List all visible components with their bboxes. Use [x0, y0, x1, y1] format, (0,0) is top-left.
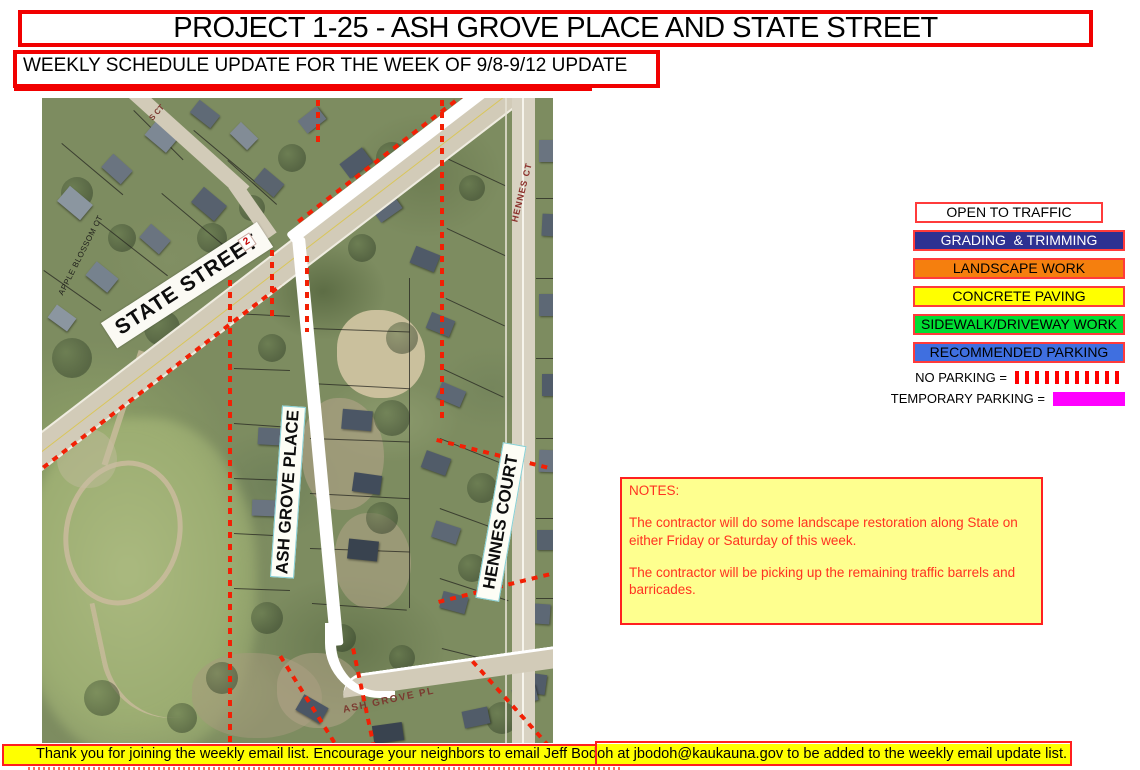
- legend-item-5: RECOMMENDED PARKING: [913, 342, 1125, 363]
- map-tree: [84, 680, 120, 716]
- legend: OPEN TO TRAFFICGRADING & TRIMMINGLANDSCA…: [913, 202, 1125, 370]
- map-house: [542, 374, 553, 396]
- map-tree: [278, 144, 306, 172]
- map-red-dash-line: [440, 100, 444, 422]
- no-parking-legend-row: NO PARKING =: [883, 370, 1125, 385]
- flyer-page: PROJECT 1-25 - ASH GROVE PLACE AND STATE…: [0, 0, 1140, 770]
- map-house: [372, 722, 404, 743]
- map-tree: [348, 234, 376, 262]
- map-red-dash-line: [270, 250, 274, 322]
- map-tree: [52, 338, 92, 378]
- map-house: [341, 409, 373, 432]
- map-house: [431, 520, 461, 544]
- temporary-parking-swatch: [1053, 392, 1125, 406]
- legend-item-2: LANDSCAPE WORK: [913, 258, 1125, 279]
- map-house: [191, 187, 227, 222]
- map-house: [85, 261, 118, 293]
- map-house: [298, 106, 327, 133]
- map-lot-line: [536, 358, 553, 359]
- map-lot-line: [536, 598, 553, 599]
- temporary-parking-legend-row: TEMPORARY PARKING =: [883, 391, 1125, 406]
- no-parking-label: NO PARKING =: [915, 370, 1007, 385]
- map-house: [252, 500, 277, 517]
- page-title: PROJECT 1-25 - ASH GROVE PLACE AND STATE…: [18, 10, 1093, 47]
- map-lot-line: [536, 518, 553, 519]
- aerial-map: STATE STREET ASH GROVE PLACE HENNES COUR…: [42, 98, 553, 743]
- map-tree: [459, 175, 485, 201]
- map-tree: [258, 334, 286, 362]
- map-lot-line: [409, 278, 410, 608]
- notes-heading: NOTES:: [629, 482, 1034, 499]
- map-lot-line: [234, 368, 290, 371]
- map-red-dash-line: [228, 268, 232, 743]
- legend-item-0: OPEN TO TRAFFIC: [915, 202, 1103, 223]
- map-tree: [366, 502, 398, 534]
- map-house: [421, 450, 452, 476]
- map-house: [462, 706, 491, 728]
- map-house: [533, 603, 550, 624]
- map-house: [539, 294, 553, 316]
- page-subtitle: WEEKLY SCHEDULE UPDATE FOR THE WEEK OF 9…: [13, 50, 660, 88]
- map-tree: [374, 400, 410, 436]
- legend-item-3: CONCRETE PAVING: [913, 286, 1125, 307]
- side-street-road: [128, 98, 250, 198]
- map-house: [352, 472, 382, 495]
- map-lot-line: [447, 228, 506, 256]
- temporary-parking-label: TEMPORARY PARKING =: [891, 391, 1045, 406]
- map-house: [48, 304, 77, 331]
- sidewalk-line: [505, 98, 507, 743]
- map-house: [539, 140, 553, 162]
- footer-banner: Thank you for joining the weekly email l…: [2, 744, 1071, 766]
- notes-paragraph: The contractor will do some landscape re…: [629, 514, 1034, 549]
- notes-box: NOTES: The contractor will do some lands…: [620, 477, 1043, 625]
- map-red-dash-line: [305, 256, 309, 332]
- map-lot-line: [536, 438, 553, 439]
- map-red-dash-line: [316, 100, 320, 146]
- legend-rows: OPEN TO TRAFFICGRADING & TRIMMINGLANDSCA…: [913, 202, 1125, 363]
- legend-item-1: GRADING & TRIMMING: [913, 230, 1125, 251]
- map-house: [347, 538, 379, 561]
- map-house: [230, 122, 258, 150]
- map-house: [541, 214, 553, 237]
- map-tree: [206, 662, 238, 694]
- map-lot-line: [536, 198, 553, 199]
- map-house: [410, 246, 441, 272]
- map-lot-line: [536, 278, 553, 279]
- notes-paragraphs: The contractor will do some landscape re…: [629, 514, 1034, 598]
- map-tree: [167, 703, 197, 733]
- map-house: [190, 100, 220, 129]
- map-tree: [251, 602, 283, 634]
- map-house: [537, 530, 553, 550]
- map-house: [254, 168, 285, 198]
- map-tree: [386, 322, 418, 354]
- notes-paragraph: The contractor will be picking up the re…: [629, 564, 1034, 599]
- no-parking-dash-swatch: [1015, 371, 1125, 384]
- legend-item-4: SIDEWALK/DRIVEWAY WORK: [913, 314, 1125, 335]
- map-house: [139, 224, 170, 255]
- subtitle-underline: [14, 88, 592, 91]
